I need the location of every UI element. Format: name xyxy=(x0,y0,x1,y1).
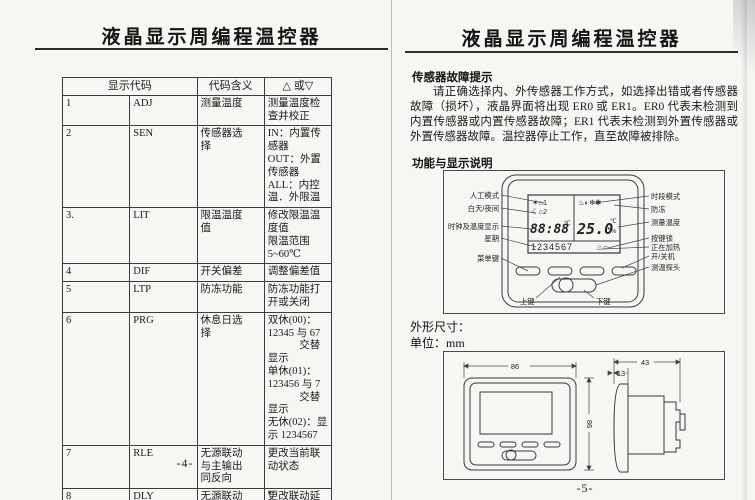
cell-code: LIT xyxy=(130,208,197,264)
header-display-code: 显示代码 xyxy=(63,78,198,96)
right-title-rule xyxy=(405,51,738,53)
scanned-manual-spread: 液晶显示周编程温控器 显示代码 代码含义 △ 或▽ 1 ADJ 测量温度 测量温… xyxy=(0,0,755,500)
label-temp-probe: 测温探头 xyxy=(651,263,680,272)
label-period-mode: 时段模式 xyxy=(651,192,681,201)
function-display-heading: 功能与显示说明 xyxy=(412,155,493,171)
callout-lines xyxy=(501,195,649,298)
dimensions-unit: 单位：mm xyxy=(410,334,465,351)
cell-num: 8 xyxy=(63,489,130,500)
right-page-number: -5- xyxy=(565,481,605,496)
label-clock-temp: 时钟及温度显示 xyxy=(448,222,499,231)
dimensions-drawing: 86 86 43 13 xyxy=(444,352,724,479)
header-meaning: 代码含义 xyxy=(197,78,264,96)
label-antifreeze: 防冻 xyxy=(651,205,666,214)
label-key-lock: 按键锁 xyxy=(651,234,674,243)
cell-num: 5 xyxy=(63,282,130,313)
cell-num: 6 xyxy=(63,312,130,445)
table-row: 1 ADJ 测量温度 测量温度检查并校正 xyxy=(63,95,332,126)
cell-action: 调整偏差值 xyxy=(264,264,331,282)
book-spine-line xyxy=(391,0,392,500)
cell-num: 1 xyxy=(63,95,130,126)
sensor-fault-paragraph: 请正确选择内、外传感器工作方式，如选择出错或者传感器故障（损坏），液晶界面将出现… xyxy=(410,85,738,145)
dim-front-width: 86 xyxy=(511,362,519,371)
front-view xyxy=(464,378,576,470)
thermostat-diagram-figure: ☀⌂1 ☾⌂2 ♨◐❄✱ 88:88 ℃ 25.0 ℃ % 1234567 ♨○ xyxy=(443,170,725,314)
header-up-down: △ 或▽ xyxy=(264,78,331,96)
cell-action: 更改联动延时时间 xyxy=(264,489,331,500)
labels-right: 时段模式 防冻 测量温度 按键锁 正在加热 开/关机 测温探头 xyxy=(651,192,681,272)
lcd-temp-unit: ℃ xyxy=(610,218,617,225)
dim-side-depth: 43 xyxy=(641,358,649,367)
cell-meaning: 无源联动 与主输出 同反向 xyxy=(197,445,264,488)
cell-meaning: 限温温度 值 xyxy=(197,208,264,264)
left-page-number: -4- xyxy=(165,456,205,471)
side-view xyxy=(614,384,685,472)
cell-action: 防冻功能打开或关闭 xyxy=(264,282,331,313)
label-up-key: 上键 xyxy=(520,297,535,306)
lcd-temp-percent: % xyxy=(611,229,617,235)
cell-code: LTP xyxy=(130,282,197,313)
cell-code: DIF xyxy=(130,264,197,282)
label-measured-temp: 测量温度 xyxy=(651,218,681,227)
label-week: 星期 xyxy=(484,234,499,243)
cell-num: 2 xyxy=(63,126,130,208)
label-down-key: 下键 xyxy=(596,297,611,306)
right-page-title: 液晶显示周编程温控器 xyxy=(405,24,738,51)
lcd-week-icons: ♨○ xyxy=(596,243,608,252)
label-heating: 正在加热 xyxy=(651,243,681,252)
cell-num: 7 xyxy=(63,445,130,488)
cell-code: PRG xyxy=(130,312,197,445)
dimensions-figure: 86 86 43 13 xyxy=(443,351,725,480)
table-row: 3. LIT 限温温度 值 修改限温温度值 限温范围 5~60℃ xyxy=(63,208,332,264)
table-row: 5 LTP 防冻功能 防冻功能打开或关闭 xyxy=(63,282,332,313)
cell-meaning: 开关偏差 xyxy=(197,264,264,282)
label-day-night: 白天/夜间 xyxy=(468,204,499,213)
night-period-icons: ☾⌂2 xyxy=(532,207,547,216)
labels-left: 人工模式 白天/夜间 时钟及温度显示 星期 菜单键 xyxy=(448,191,500,263)
thermostat-body-outline xyxy=(502,175,644,307)
dim-side-inset: 13 xyxy=(617,369,625,378)
left-page-title: 液晶显示周编程温控器 xyxy=(35,22,388,49)
dimension-lines xyxy=(464,358,680,470)
table-row: 2 SEN 传感器选 择 IN：内置传感器 OUT：外置传感器 ALL：内控温．… xyxy=(63,126,332,208)
cell-action: 测量温度检查并校正 xyxy=(264,95,331,126)
cell-action: 更改当前联动状态 xyxy=(264,445,331,488)
sensor-fault-heading: 传感器故障提示 xyxy=(412,69,493,85)
dim-front-height: 86 xyxy=(585,420,594,428)
cell-meaning: 无源联动 输出延时 时间 xyxy=(197,489,264,500)
table-header-row: 显示代码 代码含义 △ 或▽ xyxy=(63,78,332,96)
cell-meaning: 防冻功能 xyxy=(197,282,264,313)
cell-action: IN：内置传感器 OUT：外置传感器 ALL：内控温．外限温 xyxy=(264,126,331,208)
cell-meaning: 测量温度 xyxy=(197,95,264,126)
cell-num: 4 xyxy=(63,264,130,282)
dimensions-heading: 外形尺寸： xyxy=(410,318,470,335)
cell-code: ADJ xyxy=(130,95,197,126)
label-manual-mode: 人工模式 xyxy=(470,191,500,200)
cell-code: SEN xyxy=(130,126,197,208)
lcd-temperature: 25.0 xyxy=(576,220,613,238)
cell-action: 修改限温温度值 限温范围 5~60℃ xyxy=(264,208,331,264)
left-title-rule xyxy=(35,48,388,50)
cell-meaning: 传感器选 择 xyxy=(197,126,264,208)
thermostat-diagram: ☀⌂1 ☾⌂2 ♨◐❄✱ 88:88 ℃ 25.0 ℃ % 1234567 ♨○ xyxy=(444,171,724,313)
table-row: 6 PRG 休息日选 择 双休(00)：12345 与 67 交替显示 单休(0… xyxy=(63,312,332,445)
table-row: 4 DIF 开关偏差 调整偏差值 xyxy=(63,264,332,282)
label-power-key: 开/关机 xyxy=(651,252,676,261)
cell-num: 3. xyxy=(63,208,130,264)
cell-code: DLY xyxy=(130,489,197,500)
cell-meaning: 休息日选 择 xyxy=(197,312,264,445)
lcd-week-digits: 1234567 xyxy=(531,242,573,252)
table-row: 8 DLY 无源联动 输出延时 时间 更改联动延时时间 xyxy=(63,489,332,500)
cell-action: 双休(00)：12345 与 67 交替显示 单休(01)：123456 与 7… xyxy=(264,312,331,445)
display-code-table: 显示代码 代码含义 △ 或▽ 1 ADJ 测量温度 测量温度检查并校正 2 SE… xyxy=(62,77,332,500)
label-menu-key: 菜单键 xyxy=(477,254,500,263)
lcd-time-unit: ℃ xyxy=(564,220,571,227)
